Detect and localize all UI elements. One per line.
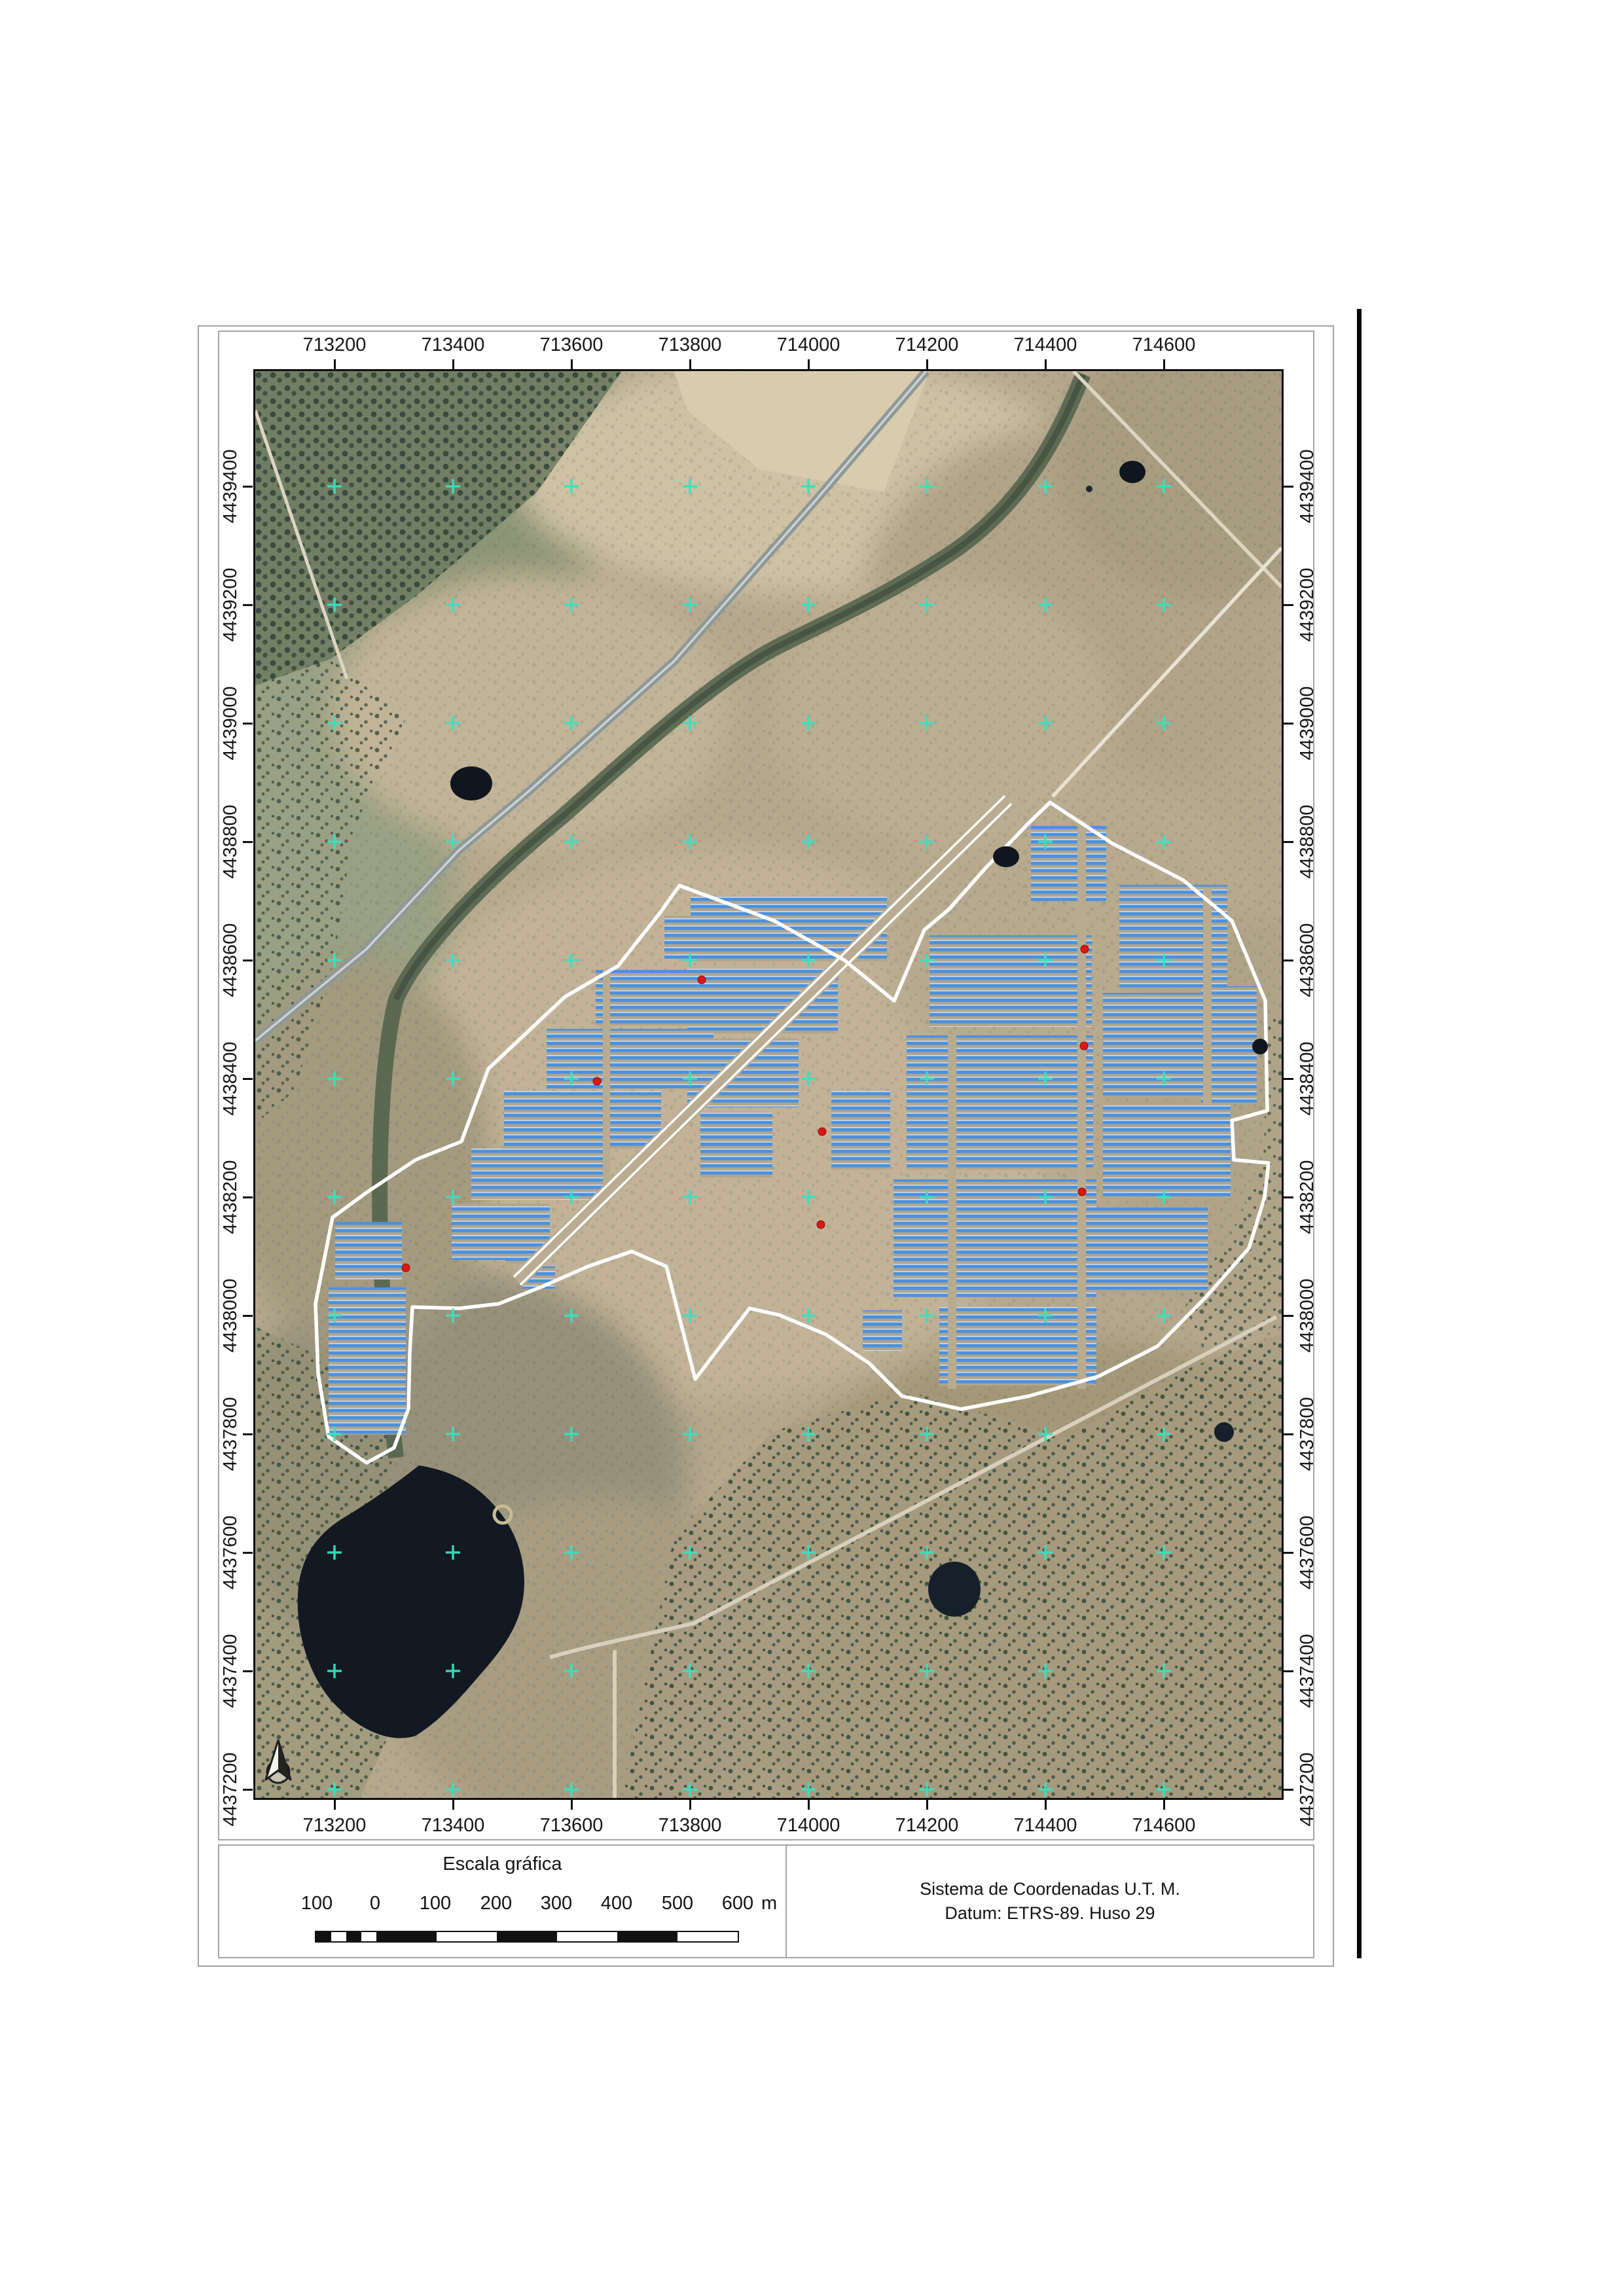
scale-bar-segment	[331, 1932, 346, 1941]
small-pond	[1214, 1422, 1234, 1442]
small-pond	[928, 1562, 981, 1617]
scale-bar-number: 600	[708, 1893, 767, 1914]
x-axis-label-bottom: 714000	[763, 1814, 854, 1837]
x-axis-tick-top	[571, 359, 573, 369]
x-axis-label-top: 713600	[526, 334, 617, 356]
y-axis-tick-right	[1284, 1315, 1293, 1317]
x-axis-label-bottom: 714200	[881, 1814, 973, 1837]
x-axis-label-bottom: 713600	[526, 1814, 617, 1837]
y-axis-label-right: 4438400	[1296, 1033, 1318, 1124]
y-axis-label-left: 4437600	[219, 1507, 242, 1598]
y-axis-label-left: 4437800	[219, 1388, 242, 1480]
scale-bar-number: 200	[467, 1893, 526, 1914]
y-axis-tick-left	[243, 723, 253, 725]
y-axis-tick-right	[1284, 1078, 1293, 1080]
crs-line1: Sistema de Coordenadas U.T. M.	[920, 1877, 1180, 1901]
y-axis-tick-right	[1284, 604, 1293, 606]
red-point-marker	[818, 1128, 826, 1136]
fold-line	[1357, 309, 1362, 1958]
red-point-marker	[593, 1077, 601, 1085]
scale-panel: Escala gráfica 1000100200300400500600m	[218, 1844, 787, 1958]
x-axis-tick-top	[808, 359, 810, 369]
y-axis-label-right: 4438000	[1296, 1270, 1318, 1361]
red-point-marker	[1078, 1188, 1086, 1196]
scale-bar-segment	[557, 1932, 617, 1941]
y-axis-label-right: 4437200	[1296, 1744, 1318, 1835]
x-axis-label-bottom: 714600	[1118, 1814, 1210, 1837]
x-axis-label-top: 714400	[1000, 334, 1091, 356]
y-axis-tick-right	[1284, 1670, 1293, 1672]
y-axis-tick-left	[243, 1433, 253, 1435]
y-axis-label-right: 4439200	[1296, 559, 1318, 651]
y-axis-label-left: 4438600	[219, 914, 242, 1006]
scale-bar-number: 100	[406, 1893, 465, 1914]
y-axis-tick-right	[1284, 486, 1293, 488]
y-axis-label-right: 4439000	[1296, 677, 1318, 769]
y-axis-label-left: 4439200	[219, 559, 242, 651]
y-axis-label-right: 4438800	[1296, 796, 1318, 888]
y-axis-label-left: 4438400	[219, 1033, 242, 1124]
y-axis-tick-left	[243, 1789, 253, 1791]
y-axis-label-right: 4437800	[1296, 1388, 1318, 1480]
x-axis-tick-bottom	[334, 1800, 336, 1810]
scale-title: Escala gráfica	[219, 1854, 785, 1875]
scale-bar-segment	[316, 1932, 331, 1941]
red-point-marker	[1080, 1042, 1088, 1050]
y-axis-tick-left	[243, 960, 253, 961]
y-axis-tick-right	[1284, 1552, 1293, 1554]
scale-bar-number: 0	[346, 1893, 405, 1914]
red-point-marker	[698, 976, 706, 984]
y-axis-label-left: 4437400	[219, 1625, 242, 1717]
small-pond	[1119, 461, 1146, 483]
x-axis-label-bottom: 714400	[1000, 1814, 1091, 1837]
map-viewport	[253, 369, 1284, 1800]
x-axis-label-top: 713400	[407, 334, 499, 356]
scale-bar-segment	[376, 1932, 437, 1941]
y-axis-label-right: 4437600	[1296, 1507, 1318, 1598]
y-axis-tick-left	[243, 1315, 253, 1317]
scale-bar-segment	[617, 1932, 677, 1941]
x-axis-label-top: 713200	[289, 334, 380, 356]
y-axis-tick-right	[1284, 841, 1293, 843]
scale-bar-segment	[346, 1932, 361, 1941]
small-pond	[993, 846, 1019, 867]
x-axis-label-bottom: 713200	[289, 1814, 380, 1837]
x-axis-tick-top	[689, 359, 691, 369]
scale-bar-segment	[497, 1932, 557, 1941]
y-axis-label-left: 4438200	[219, 1151, 242, 1243]
x-axis-tick-top	[926, 359, 928, 369]
y-axis-tick-right	[1284, 960, 1293, 961]
red-point-marker	[817, 1221, 825, 1229]
x-axis-tick-bottom	[926, 1800, 928, 1810]
scale-bar-segment	[677, 1932, 738, 1941]
x-axis-tick-bottom	[452, 1800, 454, 1810]
y-axis-label-left: 4439400	[219, 440, 242, 532]
y-axis-tick-right	[1284, 723, 1293, 725]
scale-bar-number: 100	[287, 1893, 346, 1914]
y-axis-label-right: 4438200	[1296, 1151, 1318, 1243]
x-axis-tick-bottom	[1163, 1800, 1165, 1810]
scale-bar-graphic	[315, 1931, 739, 1943]
scale-bar-number: 500	[648, 1893, 707, 1914]
y-axis-label-left: 4439000	[219, 677, 242, 769]
y-axis-tick-left	[243, 1196, 253, 1198]
crs-line2: Datum: ETRS-89. Huso 29	[945, 1901, 1155, 1926]
y-axis-label-left: 4438800	[219, 796, 242, 888]
scale-bar-number: 300	[527, 1893, 586, 1914]
x-axis-label-bottom: 713400	[407, 1814, 499, 1837]
x-axis-tick-bottom	[571, 1800, 573, 1810]
y-axis-label-right: 4438600	[1296, 914, 1318, 1006]
x-axis-label-top: 714600	[1118, 334, 1210, 356]
x-axis-tick-top	[452, 359, 454, 369]
y-axis-tick-right	[1284, 1196, 1293, 1198]
y-axis-label-left: 4437200	[219, 1744, 242, 1835]
scale-bar-segment	[361, 1932, 376, 1941]
x-axis-label-top: 714200	[881, 334, 973, 356]
y-axis-tick-left	[243, 486, 253, 488]
y-axis-tick-left	[243, 1078, 253, 1080]
x-axis-label-top: 713800	[644, 334, 736, 356]
map-sheet-page: 7132007132007134007134007136007136007138…	[0, 0, 1624, 2296]
small-pond	[1252, 1039, 1268, 1054]
x-axis-tick-bottom	[689, 1800, 691, 1810]
aerial-map	[255, 371, 1282, 1798]
y-axis-label-right: 4437400	[1296, 1625, 1318, 1717]
x-axis-tick-top	[1163, 359, 1165, 369]
x-axis-tick-top	[334, 359, 336, 369]
x-axis-label-bottom: 713800	[644, 1814, 736, 1837]
y-axis-tick-right	[1284, 1789, 1293, 1791]
small-pond	[450, 766, 492, 800]
y-axis-tick-right	[1284, 1433, 1293, 1435]
scale-bar-number: 400	[587, 1893, 646, 1914]
x-axis-tick-top	[1045, 359, 1047, 369]
y-axis-tick-left	[243, 841, 253, 843]
x-axis-label-top: 714000	[763, 334, 854, 356]
red-point-marker	[402, 1264, 410, 1272]
y-axis-label-right: 4439400	[1296, 440, 1318, 532]
y-axis-label-left: 4438000	[219, 1270, 242, 1361]
scale-bar-segment	[437, 1932, 497, 1941]
y-axis-tick-left	[243, 604, 253, 606]
x-axis-tick-bottom	[808, 1800, 810, 1810]
scale-bar-unit: m	[761, 1893, 777, 1914]
crs-panel: Sistema de Coordenadas U.T. M. Datum: ET…	[785, 1844, 1314, 1958]
y-axis-tick-left	[243, 1552, 253, 1554]
x-axis-tick-bottom	[1045, 1800, 1047, 1810]
y-axis-tick-left	[243, 1670, 253, 1672]
red-point-marker	[1081, 945, 1089, 953]
